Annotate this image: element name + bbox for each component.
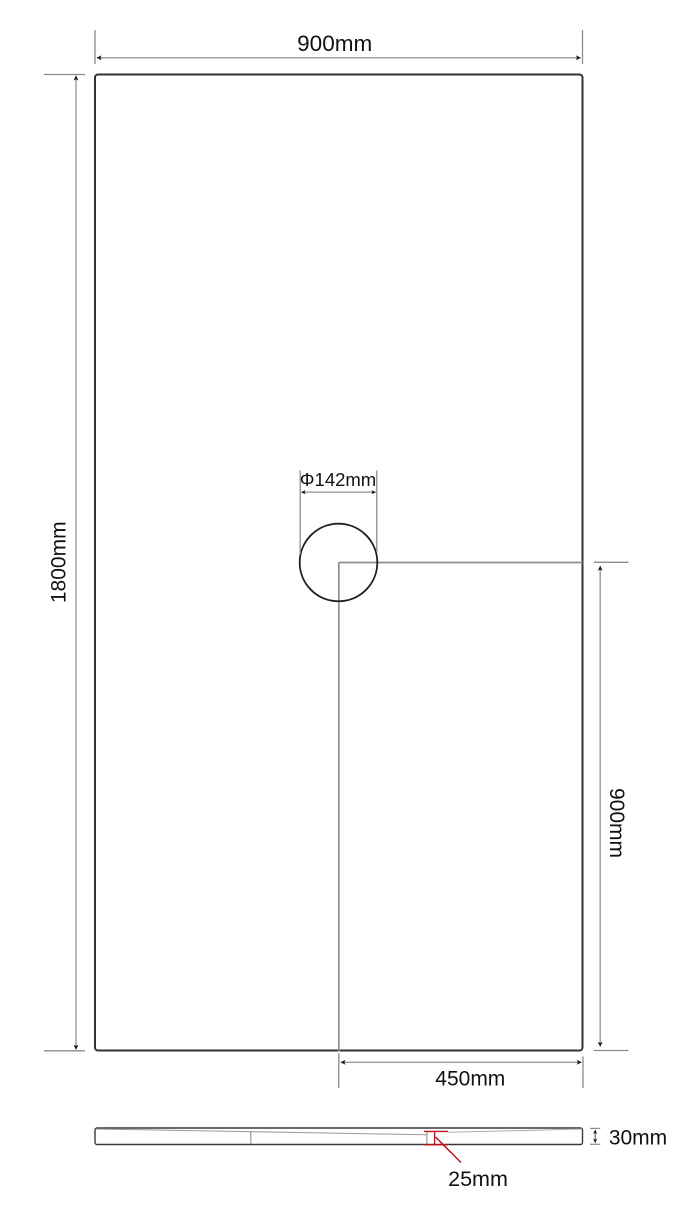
- svg-text:1800mm: 1800mm: [47, 521, 70, 603]
- svg-text:30mm: 30mm: [609, 1127, 667, 1150]
- svg-text:900mm: 900mm: [605, 788, 628, 858]
- svg-text:450mm: 450mm: [435, 1068, 505, 1091]
- svg-text:25mm: 25mm: [448, 1167, 508, 1191]
- svg-text:Φ142mm: Φ142mm: [300, 469, 376, 490]
- svg-text:900mm: 900mm: [297, 31, 372, 56]
